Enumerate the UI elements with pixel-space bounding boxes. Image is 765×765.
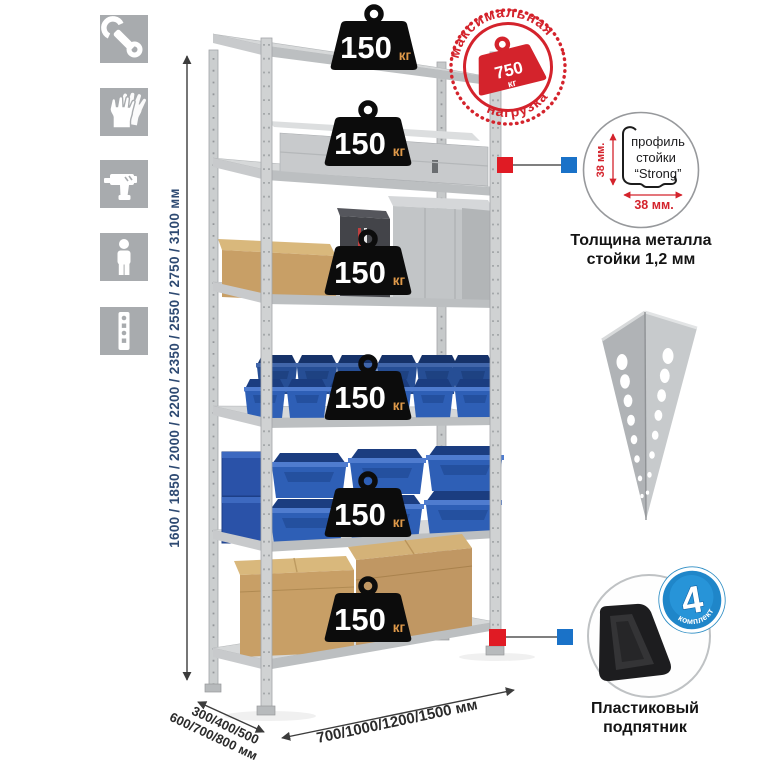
profile-label-1: профиль: [631, 134, 685, 149]
bin: [412, 379, 454, 418]
shelf-load-badge: 150 кг: [325, 103, 412, 166]
load-unit: кг: [393, 515, 406, 530]
load-unit: кг: [399, 48, 412, 63]
load-value: 150: [334, 255, 386, 290]
angle-post-image: [602, 312, 697, 520]
load-value: 150: [340, 30, 392, 65]
max-load-stamp: максимальная нагрузка 750 кг: [438, 0, 577, 136]
profile-caption: Толщина металла стойки 1,2 мм: [545, 231, 737, 269]
connector-red-marker: [497, 157, 513, 173]
foot-connector: [489, 629, 573, 646]
load-value: 150: [334, 602, 386, 637]
width-dimension: 700/1000/1200/1500 мм: [282, 690, 514, 747]
profile-dim-vertical: 38 мм.: [595, 143, 607, 178]
bin: [286, 379, 328, 418]
profile-label-2: стойки: [636, 150, 676, 165]
load-unit: кг: [393, 620, 406, 635]
load-unit: кг: [393, 144, 406, 159]
foot-caption: Пластиковый подпятник: [549, 699, 741, 737]
profile-caption-line1: Толщина металла: [545, 231, 737, 250]
height-dimension-label: 1600 / 1850 / 2000 / 2200 / 2350 / 2550 …: [167, 188, 182, 548]
connector-blue-marker: [561, 157, 577, 173]
shelf-load-badge: 150 кг: [331, 7, 418, 70]
load-value: 150: [334, 380, 386, 415]
connector-red-marker: [489, 629, 506, 646]
shelving-illustration: 1600 / 1850 / 2000 / 2200 / 2350 / 2550 …: [0, 0, 765, 765]
profile-caption-line2: стойки 1,2 мм: [545, 250, 737, 269]
profile-connector: [497, 157, 577, 173]
connector-blue-marker: [557, 629, 573, 645]
width-label: 700/1000/1200/1500 мм: [315, 696, 479, 747]
load-value: 150: [334, 126, 386, 161]
depth-dimension: 300/400/500 600/700/800 мм: [167, 696, 266, 763]
profile-callout-circle: 38 мм. 38 мм. профиль стойки “Strong”: [584, 113, 699, 228]
profile-label-3: “Strong”: [635, 166, 682, 181]
load-unit: кг: [393, 398, 406, 413]
foot-caption-line1: Пластиковый: [549, 699, 741, 718]
profile-dim-horizontal: 38 мм.: [634, 198, 673, 212]
load-value: 150: [334, 497, 386, 532]
foot-caption-line2: подпятник: [549, 718, 741, 737]
product-infographic: 1600 / 1850 / 2000 / 2200 / 2350 / 2550 …: [0, 0, 765, 765]
load-unit: кг: [393, 273, 406, 288]
bin: [348, 449, 426, 494]
height-dimension: 1600 / 1850 / 2000 / 2200 / 2350 / 2550 …: [167, 56, 187, 680]
